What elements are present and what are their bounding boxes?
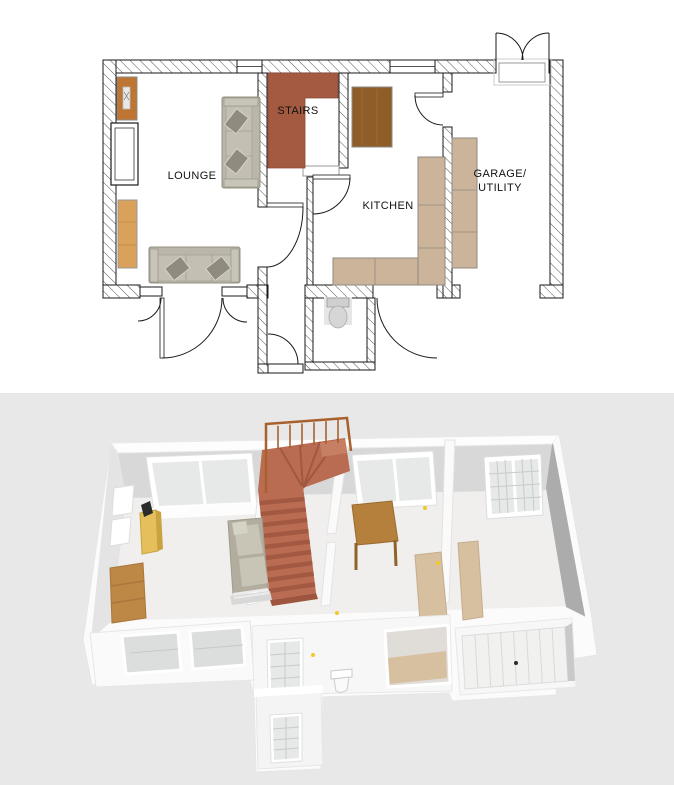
wall-top-lounge bbox=[103, 60, 237, 73]
counter-bottom bbox=[333, 258, 418, 285]
wall-lounge-hall-stub bbox=[258, 267, 267, 285]
door-leaf-kitchen bbox=[313, 175, 350, 179]
sofa-cushion-2 bbox=[239, 556, 268, 587]
garage-door-inner-frame bbox=[499, 63, 545, 82]
garage-double-door bbox=[494, 33, 551, 85]
door-arc-lounge-hall bbox=[267, 207, 303, 267]
door-arc-kitchen-garage bbox=[415, 95, 443, 125]
floor-plan-svg: LOUNGE STAIRS KITCHEN GARAGE/ UTILITY bbox=[0, 0, 674, 393]
door-arc-patio bbox=[162, 298, 222, 358]
sideboard-3d bbox=[110, 563, 146, 623]
kitchen-front-window bbox=[385, 625, 450, 687]
porch-3d bbox=[254, 685, 323, 769]
screenshot-root: LOUNGE STAIRS KITCHEN GARAGE/ UTILITY bbox=[0, 0, 674, 785]
wall-stairs-kitchen bbox=[339, 73, 348, 168]
view-3d-svg bbox=[0, 393, 674, 785]
front-lounge-windows bbox=[90, 621, 254, 687]
kitchen-back-window bbox=[352, 451, 437, 509]
garage-bench-3d bbox=[458, 541, 483, 620]
porch-glazed-door bbox=[270, 713, 302, 763]
sofa-vertical bbox=[222, 97, 260, 188]
door-arc-front-left bbox=[138, 298, 161, 321]
front-window-2 bbox=[190, 627, 245, 669]
sofa-pillow bbox=[232, 521, 248, 535]
hall-glazed-door bbox=[267, 638, 303, 693]
wall-top-stairs bbox=[262, 60, 390, 73]
wall-wc-left bbox=[305, 298, 313, 362]
wall-bottom-3 bbox=[305, 285, 373, 298]
wall-wc-bottom bbox=[305, 362, 375, 370]
staircase bbox=[268, 73, 338, 168]
garage-door-arc-left bbox=[496, 33, 523, 60]
doorframe-front-right bbox=[222, 287, 247, 296]
door-leaf-hall bbox=[267, 203, 303, 207]
garage-door-handle bbox=[514, 661, 518, 665]
garage-door-3d bbox=[455, 618, 576, 695]
doorframe-porch bbox=[268, 364, 303, 373]
toilet bbox=[324, 297, 352, 328]
lounge-label: LOUNGE bbox=[168, 170, 217, 182]
door-arc-porch bbox=[268, 334, 298, 364]
door-leaf-patio bbox=[160, 298, 164, 358]
garage-label-line2: UTILITY bbox=[478, 182, 522, 194]
toilet-bowl bbox=[329, 306, 347, 328]
wall-right bbox=[550, 60, 563, 298]
front-hall-band bbox=[252, 615, 452, 695]
cabinet-bottom-left bbox=[118, 200, 137, 268]
garage-shelving bbox=[452, 138, 477, 268]
wall-wc-right bbox=[367, 298, 375, 362]
garage-door-arc-right bbox=[522, 33, 549, 60]
door-arc-hall-kitchen bbox=[313, 177, 350, 214]
door-leaf-garage bbox=[415, 93, 443, 97]
door-arc-front-right bbox=[223, 298, 247, 322]
kitchen-table bbox=[352, 87, 392, 147]
sofa-horizontal bbox=[149, 247, 240, 283]
doorframe-front-left bbox=[140, 287, 162, 296]
stairs-label: STAIRS bbox=[277, 105, 318, 117]
wall-kitchen-garage-top bbox=[443, 73, 452, 92]
door-arc-kitchen-back bbox=[377, 298, 437, 358]
wall-porch-bottom bbox=[258, 364, 268, 373]
wall-top-kitchen bbox=[435, 60, 496, 73]
wall-bottom-5 bbox=[540, 285, 563, 298]
garage-label-line1: GARAGE/ bbox=[474, 168, 527, 180]
wall-hall-kitchen bbox=[307, 177, 313, 285]
wall-bottom-1 bbox=[103, 285, 140, 298]
lounge-back-window bbox=[146, 453, 260, 519]
kitchen-furniture bbox=[333, 87, 477, 285]
counter-right bbox=[418, 157, 445, 285]
doorframe-stairs-bottom bbox=[303, 166, 339, 176]
stairs-shape bbox=[268, 73, 338, 168]
cabinet-handle bbox=[123, 87, 130, 109]
wall-porch-left bbox=[258, 285, 267, 373]
kitchen-label: KITCHEN bbox=[362, 200, 413, 212]
garage-french-doors bbox=[484, 454, 543, 519]
kitchen-counter-3d bbox=[415, 552, 447, 621]
